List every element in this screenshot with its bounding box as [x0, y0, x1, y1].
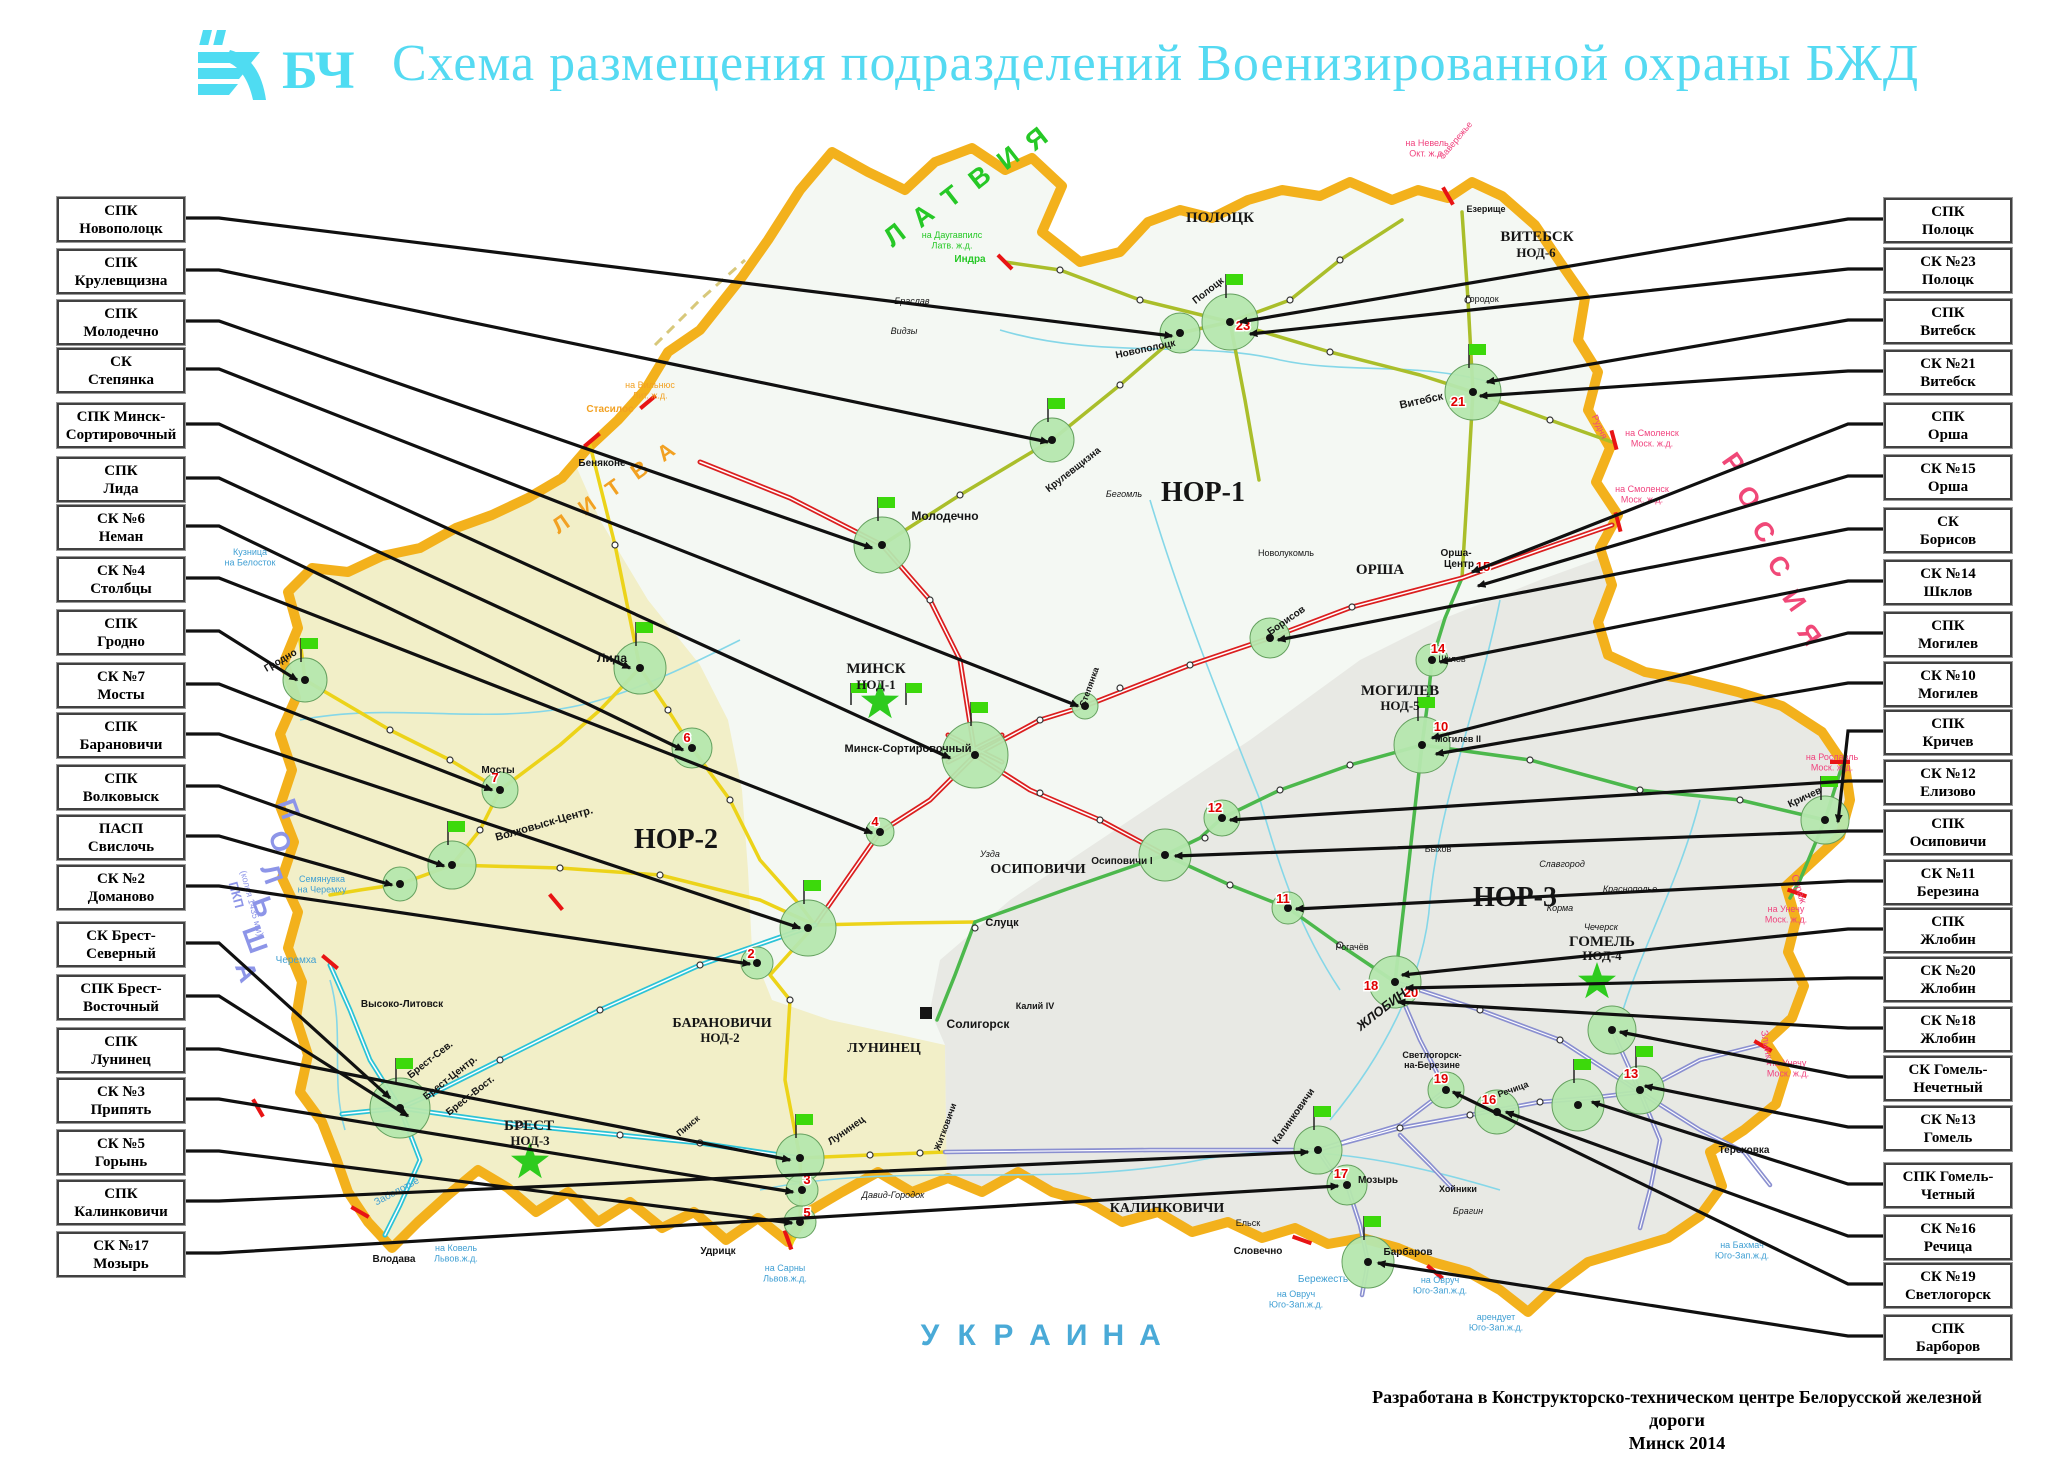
soligorsk-square: [920, 1007, 932, 1019]
station-waypoint: [477, 827, 483, 833]
callout-label: Сортировочный: [59, 426, 183, 444]
callout-label: Светлогорск: [1886, 1286, 2010, 1304]
callout-right-12: СК №12Елизово: [1884, 760, 2012, 805]
annotation: на УнечуМоск. ж.д.: [1765, 904, 1807, 925]
callout-label: Березина: [1886, 883, 2010, 901]
callout-label: ПАСП: [59, 820, 183, 838]
callout-label: СПК Минск-: [59, 408, 183, 426]
station-dot: [1574, 1101, 1582, 1109]
map-label: Рогачёв: [1336, 942, 1369, 952]
callout-label: СПК: [1886, 408, 2010, 426]
annotation: арендуетЮго-Зап.ж.д.: [1469, 1312, 1523, 1333]
station-dot: [1176, 329, 1184, 337]
annotation: Бережесть: [1298, 1274, 1348, 1285]
station-dot: [971, 751, 979, 759]
station-dot: [1161, 851, 1169, 859]
callout-right-6: СК №15Орша: [1884, 455, 2012, 500]
connector-right-23: [1378, 1263, 1884, 1336]
callout-right-23: СПКБарборов: [1884, 1315, 2012, 1360]
svg-text:У: У: [921, 1319, 940, 1352]
callout-label: Восточный: [59, 998, 183, 1016]
callout-label: Речица: [1886, 1238, 2010, 1256]
callout-label: СПК: [59, 305, 183, 323]
map-label: Высоко-Литовск: [361, 999, 444, 1010]
annotation: на ОвручЮго-Зап.ж.д.: [1413, 1275, 1467, 1296]
callout-left-10: СК №7Мосты: [57, 663, 185, 708]
map-label: НОД-1: [856, 677, 895, 692]
callout-label: Жлобин: [1886, 1030, 2010, 1048]
country-label-украина: УКРАИНА: [921, 1319, 1161, 1352]
callout-label: СПК: [59, 770, 183, 788]
callout-label: Гродно: [59, 633, 183, 651]
map-label: Ельск: [1236, 1218, 1260, 1228]
station-dot: [636, 664, 644, 672]
callout-label: СПК: [1886, 1320, 2010, 1338]
region-label: НОР-2: [634, 824, 718, 855]
station-dot: [1418, 741, 1426, 749]
station-dot: [1469, 388, 1477, 396]
station-dot: [1391, 978, 1399, 986]
map-label: Удрицк: [700, 1246, 736, 1257]
svg-text:А: А: [1029, 1319, 1051, 1352]
annotation: Черемха: [276, 955, 317, 966]
station-dot: [804, 924, 812, 932]
callout-right-2: СК №23Полоцк: [1884, 248, 2012, 293]
callout-label: СК №18: [1886, 1012, 2010, 1030]
callout-label: Четный: [1886, 1186, 2010, 1204]
station-waypoint: [1537, 1099, 1543, 1105]
station-waypoint: [927, 597, 933, 603]
map-label: Мосты: [481, 765, 514, 776]
callout-label: СК Гомель-: [1886, 1061, 2010, 1079]
callout-left-16: СПК Брест-Восточный: [57, 975, 185, 1020]
callout-right-22: СК №19Светлогорск: [1884, 1263, 2012, 1308]
station-waypoint: [1037, 717, 1043, 723]
map-label: БРЕСТ: [504, 1118, 554, 1134]
callout-label: Припять: [59, 1101, 183, 1119]
callout-label: Нечетный: [1886, 1079, 2010, 1097]
station-waypoint: [1397, 1125, 1403, 1131]
station-dot: [1343, 1181, 1351, 1189]
callout-label: Волковыск: [59, 788, 183, 806]
svg-text:Ш: Ш: [236, 921, 273, 957]
station-dot: [1314, 1146, 1322, 1154]
callout-label: СК №10: [1886, 667, 2010, 685]
callout-label: СК №13: [1886, 1111, 2010, 1129]
map-label: ОРША: [1356, 562, 1404, 578]
flag-icon: [878, 497, 895, 508]
station-waypoint: [1097, 817, 1103, 823]
callout-label: СПК Брест-: [59, 980, 183, 998]
callout-right-4: СК №21Витебск: [1884, 350, 2012, 395]
callout-left-7: СК №6Неман: [57, 505, 185, 550]
callout-label: СК №20: [1886, 962, 2010, 980]
station-waypoint: [597, 1007, 603, 1013]
station-waypoint: [1037, 790, 1043, 796]
station-waypoint: [1547, 417, 1553, 423]
poster: БЧ Схема размещения подразделений Воениз…: [0, 0, 2066, 1461]
flag-icon: [1636, 1046, 1653, 1057]
callout-label: СПК: [1886, 203, 2010, 221]
svg-text:И: И: [1066, 1319, 1088, 1352]
svg-text:А: А: [229, 958, 264, 987]
callout-label: Елизово: [1886, 783, 2010, 801]
callout-label: СПК: [59, 1185, 183, 1203]
map-label: Минск-Сортировочный: [845, 743, 972, 755]
unit-number: 16: [1482, 1092, 1496, 1107]
svg-text:А: А: [1139, 1319, 1161, 1352]
map-label: Городок: [1465, 294, 1498, 304]
map-label: Мозырь: [1358, 1175, 1398, 1186]
unit-number: 12: [1208, 800, 1222, 815]
callout-label: СК №23: [1886, 253, 2010, 271]
station-waypoint: [1057, 267, 1063, 273]
station-waypoint: [1557, 1037, 1563, 1043]
station-waypoint: [727, 797, 733, 803]
callout-label: Лунинец: [59, 1051, 183, 1069]
callout-label: Орша: [1886, 478, 2010, 496]
map-label: Видзы: [891, 326, 918, 336]
map-label: Славгород: [1539, 859, 1585, 869]
callout-left-5: СПК Минск-Сортировочный: [57, 403, 185, 448]
station-waypoint: [1117, 685, 1123, 691]
station-dot: [878, 541, 886, 549]
callout-label: СК №12: [1886, 765, 2010, 783]
callout-label: Неман: [59, 528, 183, 546]
callout-label: Молодечно: [59, 323, 183, 341]
flag-icon: [396, 1058, 413, 1069]
callout-label: СК №16: [1886, 1220, 2010, 1238]
callout-label: СПК: [1886, 617, 2010, 635]
callout-label: Столбцы: [59, 580, 183, 598]
callout-left-20: СПККалинковичи: [57, 1180, 185, 1225]
callout-left-11: СПКБарановичи: [57, 713, 185, 758]
map-label: Чечерск: [1584, 922, 1619, 932]
callout-label: СК №14: [1886, 565, 2010, 583]
station-waypoint: [557, 865, 563, 871]
unit-number: 19: [1434, 1071, 1448, 1086]
unit-number: 2: [747, 946, 754, 961]
station-waypoint: [957, 492, 963, 498]
station-dot: [396, 880, 404, 888]
station-dot: [496, 786, 504, 794]
station-waypoint: [972, 925, 978, 931]
station-waypoint: [1227, 882, 1233, 888]
station-waypoint: [1637, 787, 1643, 793]
station-waypoint: [867, 1152, 873, 1158]
map-label: Центр: [1444, 559, 1474, 570]
callout-label: СПК: [1886, 913, 2010, 931]
unit-number: 4: [871, 814, 879, 829]
callout-label: Шклов: [1886, 583, 2010, 601]
callout-label: СПК: [59, 254, 183, 272]
callout-label: СПК: [59, 462, 183, 480]
callout-label: СПК: [1886, 815, 2010, 833]
map-label: на-Березине: [1404, 1060, 1460, 1070]
callout-right-1: СПКПолоцк: [1884, 198, 2012, 243]
map-label: Орша-: [1440, 548, 1471, 559]
callout-label: СК №6: [59, 510, 183, 528]
station-waypoint: [1277, 787, 1283, 793]
callout-label: СПК Гомель-: [1886, 1168, 2010, 1186]
callout-left-15: СК Брест-Северный: [57, 922, 185, 967]
annotation: на ОвручЮго-Зап.ж.д.: [1269, 1289, 1323, 1310]
annotation: Индра: [954, 254, 986, 265]
region-label: НОР-1: [1161, 477, 1245, 508]
map-label: ОСИПОВИЧИ: [990, 862, 1085, 877]
callout-right-21: СК №16Речица: [1884, 1215, 2012, 1260]
callout-label: Могилев: [1886, 685, 2010, 703]
map-label: Корма: [1547, 903, 1573, 913]
callout-right-14: СК №11Березина: [1884, 860, 2012, 905]
callout-right-11: СПККричев: [1884, 710, 2012, 755]
callout-right-3: СПКВитебск: [1884, 299, 2012, 344]
svg-text:Р: Р: [993, 1319, 1013, 1352]
callout-label: Жлобин: [1886, 931, 2010, 949]
callout-label: Полоцк: [1886, 221, 2010, 239]
callout-left-2: СПККрулевщизна: [57, 249, 185, 294]
callout-label: СПК: [59, 202, 183, 220]
callout-label: СК №4: [59, 562, 183, 580]
map-label: ЛУНИНЕЦ: [847, 1041, 921, 1056]
callout-right-19: СК №13Гомель: [1884, 1106, 2012, 1151]
station-waypoint: [917, 1150, 923, 1156]
callout-left-9: СПКГродно: [57, 610, 185, 655]
station-waypoint: [657, 872, 663, 878]
callout-label: Витебск: [1886, 322, 2010, 340]
station-dot: [1226, 318, 1234, 326]
callout-label: Свислочь: [59, 838, 183, 856]
station-waypoint: [387, 727, 393, 733]
callout-label: Степянка: [59, 371, 183, 389]
callout-label: Барановичи: [59, 736, 183, 754]
callout-label: Могилев: [1886, 635, 2010, 653]
flag-icon: [1314, 1106, 1331, 1117]
flag-icon: [448, 821, 465, 832]
unit-number: 6: [683, 730, 690, 745]
flag-icon: [301, 638, 318, 649]
callout-label: Мозырь: [59, 1255, 183, 1273]
station-waypoint: [1327, 349, 1333, 355]
station-waypoint: [787, 997, 793, 1003]
unit-pripyat: [786, 1174, 818, 1206]
station-waypoint: [497, 1057, 503, 1063]
callout-label: Северный: [59, 945, 183, 963]
station-waypoint: [665, 707, 671, 713]
callout-left-17: СПКЛунинец: [57, 1028, 185, 1073]
map-label: МИНСК: [846, 661, 905, 677]
callout-label: СПК: [59, 615, 183, 633]
map-label: МОГИЛЕВ: [1361, 683, 1439, 699]
map-label: Калий IV: [1016, 1001, 1054, 1011]
station-dot: [1442, 1086, 1450, 1094]
callout-left-19: СК №5Горынь: [57, 1130, 185, 1175]
annotation: на СарныЛьвов.ж.д.: [763, 1263, 807, 1284]
map-label: Новолукомль: [1258, 548, 1314, 558]
callout-left-6: СПКЛида: [57, 457, 185, 502]
flag-icon: [1048, 398, 1065, 409]
callout-label: Осиповичи: [1886, 833, 2010, 851]
station-dot: [301, 676, 309, 684]
annotation: на КовельЛьвов.ж.д.: [434, 1243, 478, 1264]
svg-text:К: К: [958, 1319, 977, 1352]
callout-label: Доманово: [59, 888, 183, 906]
map-label: Словечно: [1234, 1246, 1283, 1257]
callout-label: СК: [59, 353, 183, 371]
map-label: ПОЛОЦК: [1186, 210, 1254, 226]
callout-label: СК №17: [59, 1237, 183, 1255]
annotation: на РославльМоск. ж.д.: [1806, 752, 1859, 773]
map-label: НОД-2: [700, 1030, 739, 1045]
flag-icon: [1364, 1216, 1381, 1227]
flag-icon: [804, 880, 821, 891]
station-dot: [1428, 656, 1436, 664]
map-label: Осиповичи I: [1091, 856, 1153, 867]
callout-left-8: СК №4Столбцы: [57, 557, 185, 602]
callout-label: Кричев: [1886, 733, 2010, 751]
callout-right-10: СК №10Могилев: [1884, 662, 2012, 707]
svg-text:Я: Я: [1020, 121, 1054, 157]
callout-right-7: СКБорисов: [1884, 508, 2012, 553]
flag-icon: [796, 1114, 813, 1125]
map-label: Езерище: [1467, 204, 1506, 214]
callout-label: Крулевщизна: [59, 272, 183, 290]
station-dot: [798, 1186, 806, 1194]
callout-label: СК №5: [59, 1135, 183, 1153]
unit-number: 21: [1451, 394, 1465, 409]
flag-icon: [1226, 274, 1243, 285]
station-dot: [448, 861, 456, 869]
callout-left-3: СПКМолодечно: [57, 300, 185, 345]
station-waypoint: [1467, 1112, 1473, 1118]
station-waypoint: [1737, 797, 1743, 803]
callout-right-15: СПКЖлобин: [1884, 908, 2012, 953]
map-label: Светлогорск-: [1402, 1050, 1461, 1060]
unit-mosty: [482, 772, 518, 808]
callout-right-13: СПКОсиповичи: [1884, 810, 2012, 855]
callout-label: СК: [1886, 513, 2010, 531]
callout-label: Полоцк: [1886, 271, 2010, 289]
map-label: Брагин: [1453, 1206, 1483, 1216]
station-waypoint: [617, 1132, 623, 1138]
map-label: Солигорск: [947, 1017, 1011, 1031]
callout-label: Орша: [1886, 426, 2010, 444]
station-waypoint: [1187, 662, 1193, 668]
callout-label: СК №19: [1886, 1268, 2010, 1286]
map-label: Молодечно: [911, 509, 978, 523]
callout-left-18: СК №3Припять: [57, 1078, 185, 1123]
station-waypoint: [447, 757, 453, 763]
callout-right-16: СК №20Жлобин: [1884, 957, 2012, 1002]
map-label: ВИТЕБСК: [1500, 229, 1573, 245]
map: 23211514101211674235171613182019 НОР-1НО…: [0, 0, 2066, 1461]
station-waypoint: [1137, 297, 1143, 303]
callout-label: Жлобин: [1886, 980, 2010, 998]
callout-label: СПК: [1886, 304, 2010, 322]
map-label: Хойники: [1439, 1184, 1477, 1194]
flag-icon: [1574, 1059, 1591, 1070]
map-label: Барбаров: [1384, 1246, 1433, 1258]
station-waypoint: [1347, 762, 1353, 768]
station-waypoint: [1287, 297, 1293, 303]
station-waypoint: [1337, 257, 1343, 263]
annotation: на СмоленскМоск. ж.д.: [1625, 428, 1679, 449]
station-waypoint: [1349, 604, 1355, 610]
map-label: Бегомль: [1106, 489, 1142, 499]
station-dot: [1636, 1086, 1644, 1094]
callout-left-21: СК №17Мозырь: [57, 1232, 185, 1277]
flag-icon: [636, 622, 653, 633]
map-label: НОД-5: [1380, 698, 1420, 713]
callout-left-13: ПАСПСвислочь: [57, 815, 185, 860]
callout-label: Витебск: [1886, 373, 2010, 391]
station-waypoint: [1527, 757, 1533, 763]
callout-label: СК №2: [59, 870, 183, 888]
station-dot: [1218, 814, 1226, 822]
station-dot: [796, 1154, 804, 1162]
callout-label: СК №11: [1886, 865, 2010, 883]
flag-icon: [971, 702, 988, 713]
unit-number: 13: [1624, 1066, 1638, 1081]
callout-right-20: СПК Гомель-Четный: [1884, 1163, 2012, 1208]
callout-label: Барборов: [1886, 1338, 2010, 1356]
station-dot: [1821, 816, 1829, 824]
unit-number: 17: [1334, 1166, 1348, 1181]
callout-label: СК Брест-: [59, 927, 183, 945]
callout-label: Горынь: [59, 1153, 183, 1171]
callout-left-14: СК №2Доманово: [57, 865, 185, 910]
callout-left-4: СКСтепянка: [57, 348, 185, 393]
callout-label: СК №3: [59, 1083, 183, 1101]
station-dot: [688, 744, 696, 752]
station-dot: [1048, 436, 1056, 444]
station-dot: [1608, 1026, 1616, 1034]
country-label-россия: РОССИЯ: [1716, 447, 1827, 652]
callout-label: Борисов: [1886, 531, 2010, 549]
callout-label: Лида: [59, 480, 183, 498]
regions: [210, 148, 1920, 1400]
border-crossing-tick: [253, 1099, 263, 1116]
map-label: Слуцк: [985, 917, 1019, 929]
station-dot: [876, 828, 884, 836]
callout-left-1: СПКНовополоцк: [57, 197, 185, 242]
unit-number: 10: [1434, 719, 1448, 734]
callout-label: Мосты: [59, 686, 183, 704]
callout-right-5: СПКОрша: [1884, 403, 2012, 448]
map-label: БАРАНОВИЧИ: [672, 1016, 771, 1031]
station-dot: [1364, 1258, 1372, 1266]
callout-label: СПК: [1886, 715, 2010, 733]
map-label: Узда: [979, 849, 1000, 859]
unit-number: 11: [1276, 891, 1290, 906]
map-label: КАЛИНКОВИЧИ: [1110, 1201, 1225, 1216]
callout-right-18: СК Гомель-Нечетный: [1884, 1056, 2012, 1101]
svg-text:Н: Н: [1102, 1319, 1124, 1352]
station-waypoint: [697, 962, 703, 968]
callout-label: Калинковичи: [59, 1203, 183, 1221]
callout-right-8: СК №14Шклов: [1884, 560, 2012, 605]
callout-label: СПК: [59, 718, 183, 736]
flag-icon: [1469, 344, 1486, 355]
station-waypoint: [1202, 835, 1208, 841]
callout-right-17: СК №18Жлобин: [1884, 1007, 2012, 1052]
annotation: Семянувкана Черемху: [298, 874, 347, 895]
unit-number: 18: [1364, 978, 1378, 993]
map-label: Влодава: [373, 1254, 416, 1265]
callout-label: СПК: [59, 1033, 183, 1051]
callout-left-12: СПКВолковыск: [57, 765, 185, 810]
callout-label: Новополоцк: [59, 220, 183, 238]
